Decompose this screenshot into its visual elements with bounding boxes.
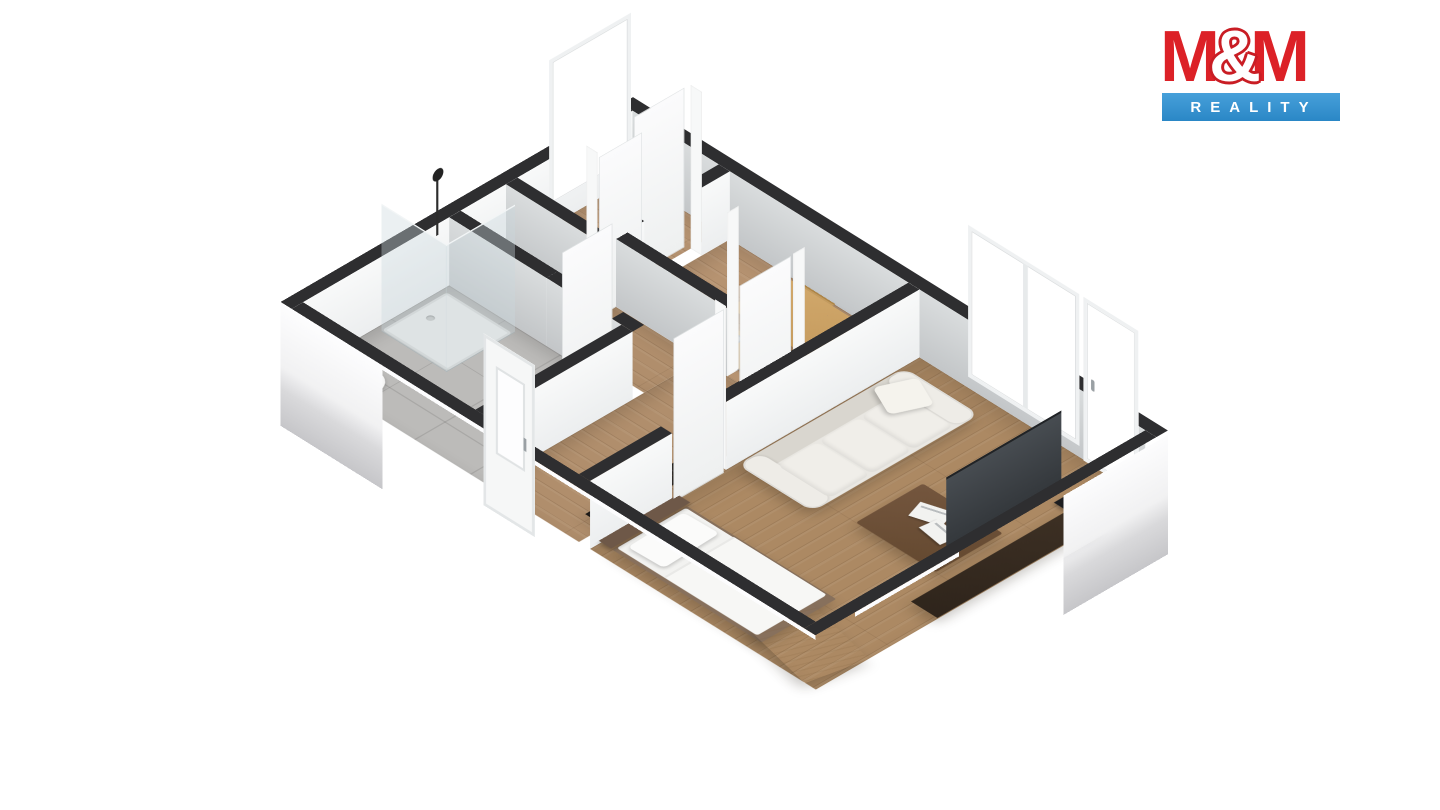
entrance-door-glass xyxy=(496,366,525,472)
entrance-door xyxy=(483,333,534,537)
door-handle-icon xyxy=(1091,379,1094,392)
brand-logo-mm: M&M xyxy=(1160,26,1422,88)
kitchen-doorway-jamb-west xyxy=(727,206,739,376)
vestibule-door-jamb xyxy=(691,85,702,256)
logo-ampersand: & xyxy=(1209,17,1254,97)
logo-m-right: M xyxy=(1250,17,1303,97)
living-door-leaf xyxy=(673,309,723,502)
brand-logo-subtitle: REALITY xyxy=(1162,93,1340,121)
brand-logo: M&M REALITY xyxy=(1160,26,1422,121)
window-mullion xyxy=(1023,263,1028,410)
floorplan-screenshot: M&M REALITY xyxy=(0,0,1440,810)
logo-m-left: M xyxy=(1160,17,1213,97)
apartment-3d-floorplan xyxy=(281,165,1168,703)
entrance-door-handle-icon xyxy=(524,437,527,452)
